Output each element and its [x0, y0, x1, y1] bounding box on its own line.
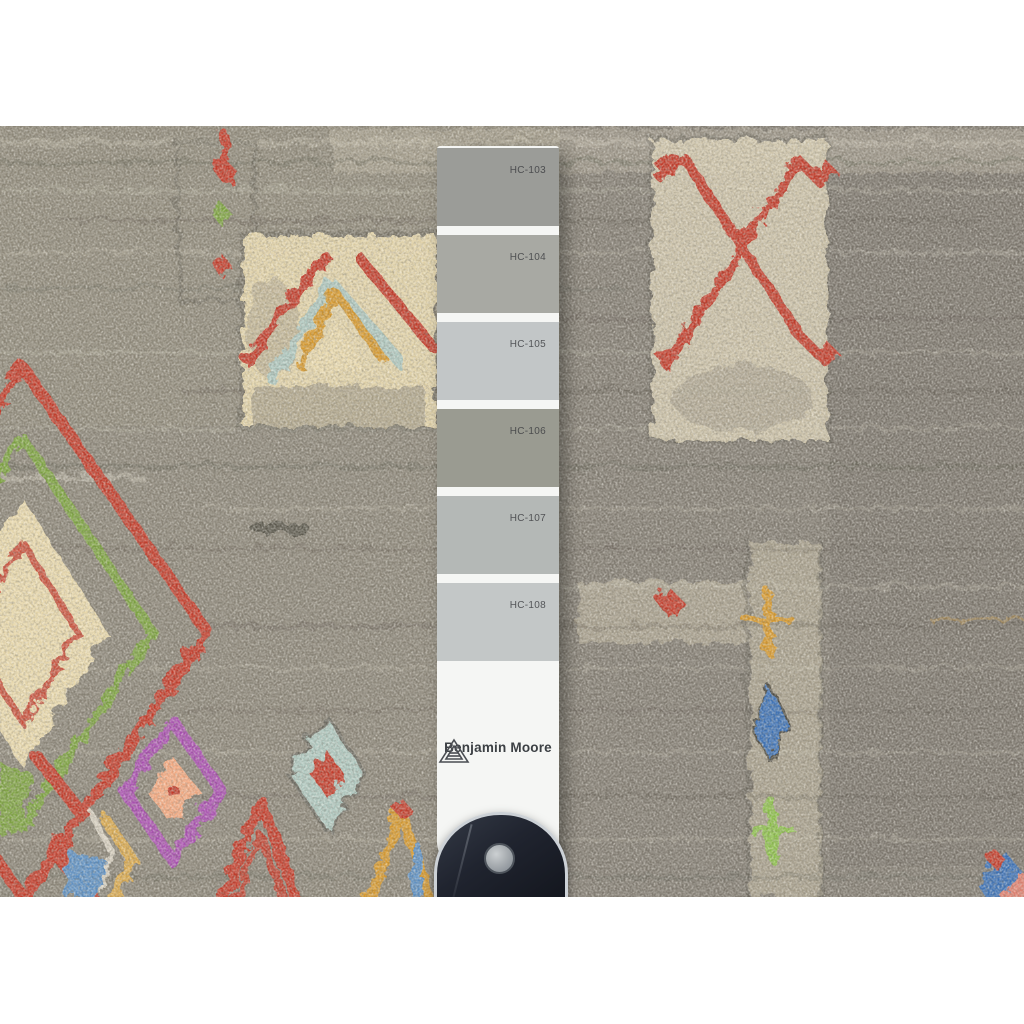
screenshot-canvas: { "image": { "subject": "Gray hand-knott…: [0, 0, 1024, 1024]
paint-swatch: HC-104: [437, 235, 559, 313]
paint-swatch-code: HC-105: [437, 322, 559, 350]
paint-swatch-code: HC-104: [437, 235, 559, 263]
strip-footer: Benjamin Moore: [437, 738, 559, 755]
rug-photo: HC-103 HC-104 HC-105 HC-106 HC-107 HC-10…: [0, 126, 1024, 897]
handle-rivet: [484, 843, 515, 874]
paint-swatch: HC-103: [437, 148, 559, 226]
paint-swatch-code: HC-108: [437, 583, 559, 611]
benjamin-moore-triangle-icon: [437, 738, 471, 764]
paint-swatch-code: HC-103: [437, 148, 559, 176]
paint-swatch-code: HC-106: [437, 409, 559, 437]
paint-swatch: HC-108: [437, 583, 559, 661]
paint-swatch: HC-106: [437, 409, 559, 487]
paint-swatch-code: HC-107: [437, 496, 559, 524]
paint-sample-strip: HC-103 HC-104 HC-105 HC-106 HC-107 HC-10…: [437, 146, 559, 868]
paint-swatch: HC-105: [437, 322, 559, 400]
paint-swatch: HC-107: [437, 496, 559, 574]
handle-scratch: [447, 824, 472, 897]
